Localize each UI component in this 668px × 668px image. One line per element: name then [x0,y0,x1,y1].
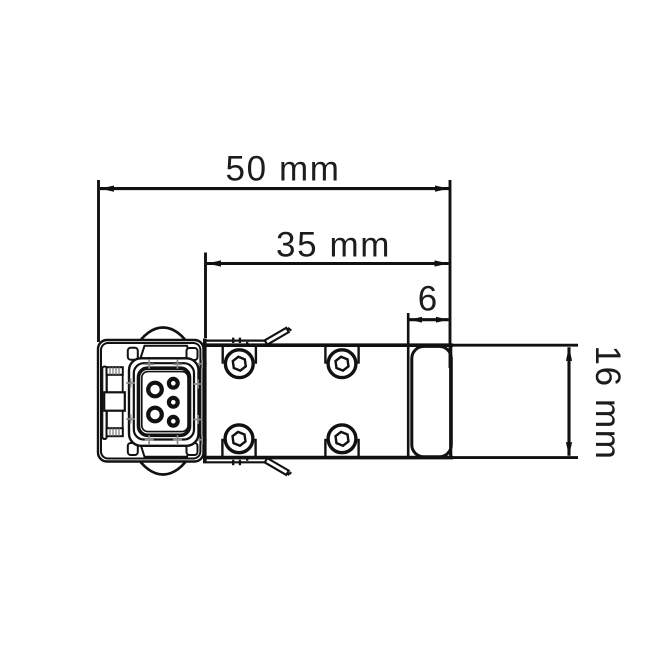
svg-text:50 mm: 50 mm [226,150,341,189]
svg-text:35 mm: 35 mm [276,226,391,265]
svg-text:16 mm: 16 mm [588,346,627,461]
svg-text:6: 6 [418,280,437,319]
